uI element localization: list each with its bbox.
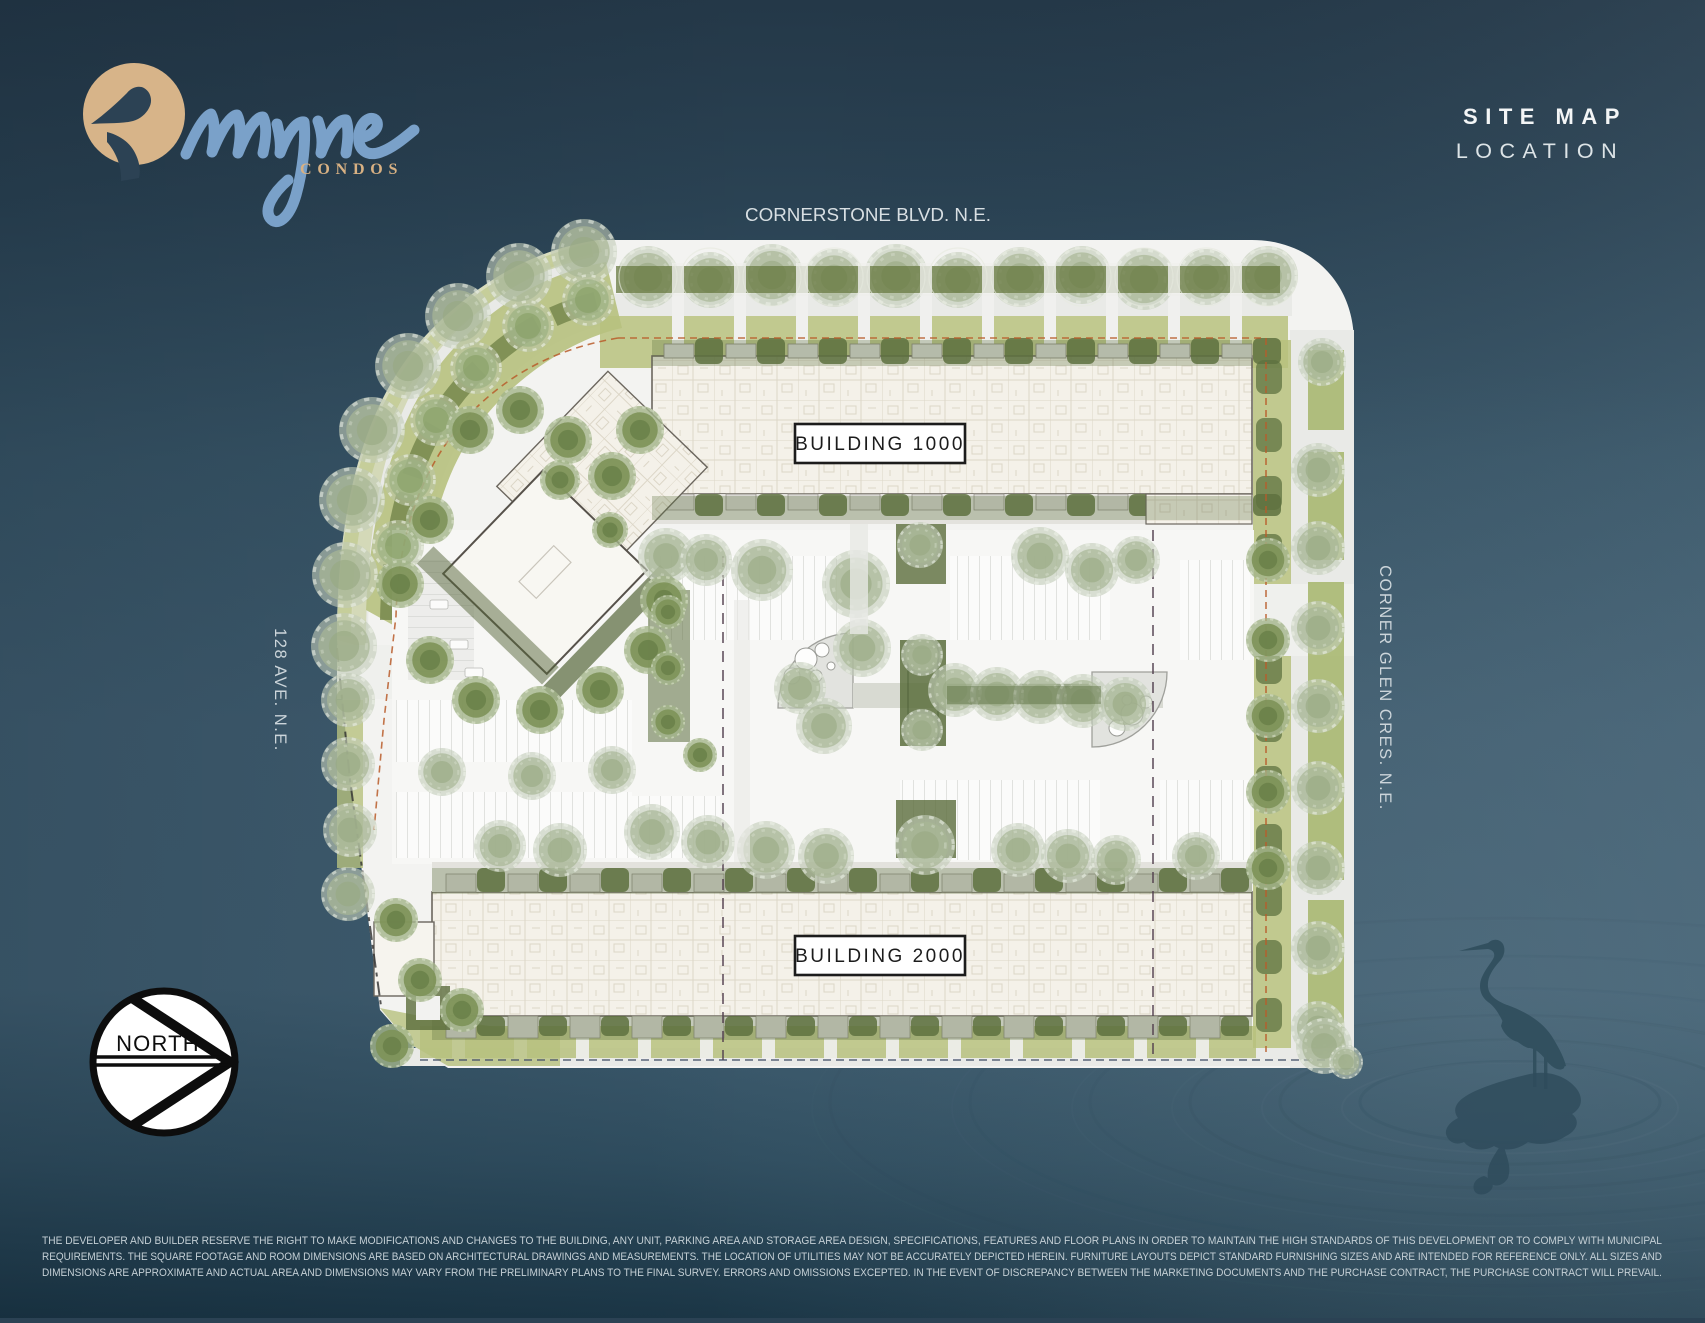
svg-text:CORNER GLEN CRES. N.E.: CORNER GLEN CRES. N.E. bbox=[1376, 565, 1394, 811]
svg-text:128 AVE. N.E.: 128 AVE. N.E. bbox=[271, 628, 289, 752]
svg-text:DIMENSIONS ARE APPROXIMATE AND: DIMENSIONS ARE APPROXIMATE AND ACTUAL AR… bbox=[42, 1267, 1662, 1279]
svg-text:CORNERSTONE BLVD. N.E.: CORNERSTONE BLVD. N.E. bbox=[745, 205, 991, 225]
svg-text:REQUIREMENTS. THE SQUARE FOOTA: REQUIREMENTS. THE SQUARE FOOTAGE AND ROO… bbox=[42, 1251, 1662, 1263]
svg-text:NORTH: NORTH bbox=[116, 1031, 200, 1056]
svg-text:SITE MAP: SITE MAP bbox=[1463, 104, 1627, 129]
svg-text:BUILDING 2000: BUILDING 2000 bbox=[795, 946, 965, 967]
svg-text:CONDOS: CONDOS bbox=[300, 161, 403, 178]
svg-text:BUILDING 1000: BUILDING 1000 bbox=[795, 434, 965, 455]
svg-text:THE DEVELOPER AND BUILDER RESE: THE DEVELOPER AND BUILDER RESERVE THE RI… bbox=[42, 1235, 1662, 1247]
svg-text:LOCATION: LOCATION bbox=[1456, 139, 1624, 163]
